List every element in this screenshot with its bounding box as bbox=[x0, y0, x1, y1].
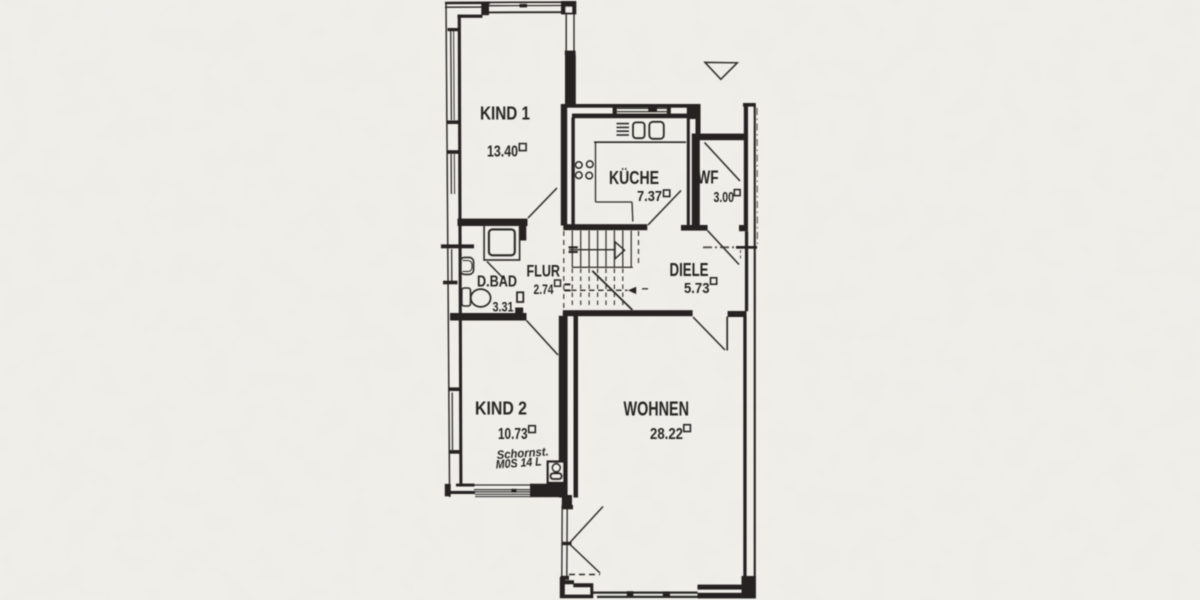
svg-text:10.73: 10.73 bbox=[498, 426, 528, 443]
svg-text:7.37: 7.37 bbox=[637, 188, 662, 205]
svg-text:FLUR: FLUR bbox=[527, 262, 561, 281]
svg-text:3.31: 3.31 bbox=[493, 300, 514, 315]
svg-text:WOHNEN: WOHNEN bbox=[624, 398, 690, 421]
svg-text:D.BAD: D.BAD bbox=[477, 274, 517, 291]
svg-text:KIND 1: KIND 1 bbox=[480, 104, 530, 124]
svg-text:13.40: 13.40 bbox=[487, 144, 518, 161]
svg-text:28.22: 28.22 bbox=[650, 426, 683, 443]
svg-text:DIELE: DIELE bbox=[670, 259, 709, 280]
svg-text:KIND 2: KIND 2 bbox=[475, 399, 527, 419]
svg-text:KÜCHE: KÜCHE bbox=[609, 168, 659, 188]
svg-text:WF: WF bbox=[698, 167, 719, 188]
svg-text:2.74: 2.74 bbox=[534, 281, 554, 297]
svg-text:3.00: 3.00 bbox=[714, 190, 735, 206]
svg-text:5.73: 5.73 bbox=[684, 280, 710, 297]
